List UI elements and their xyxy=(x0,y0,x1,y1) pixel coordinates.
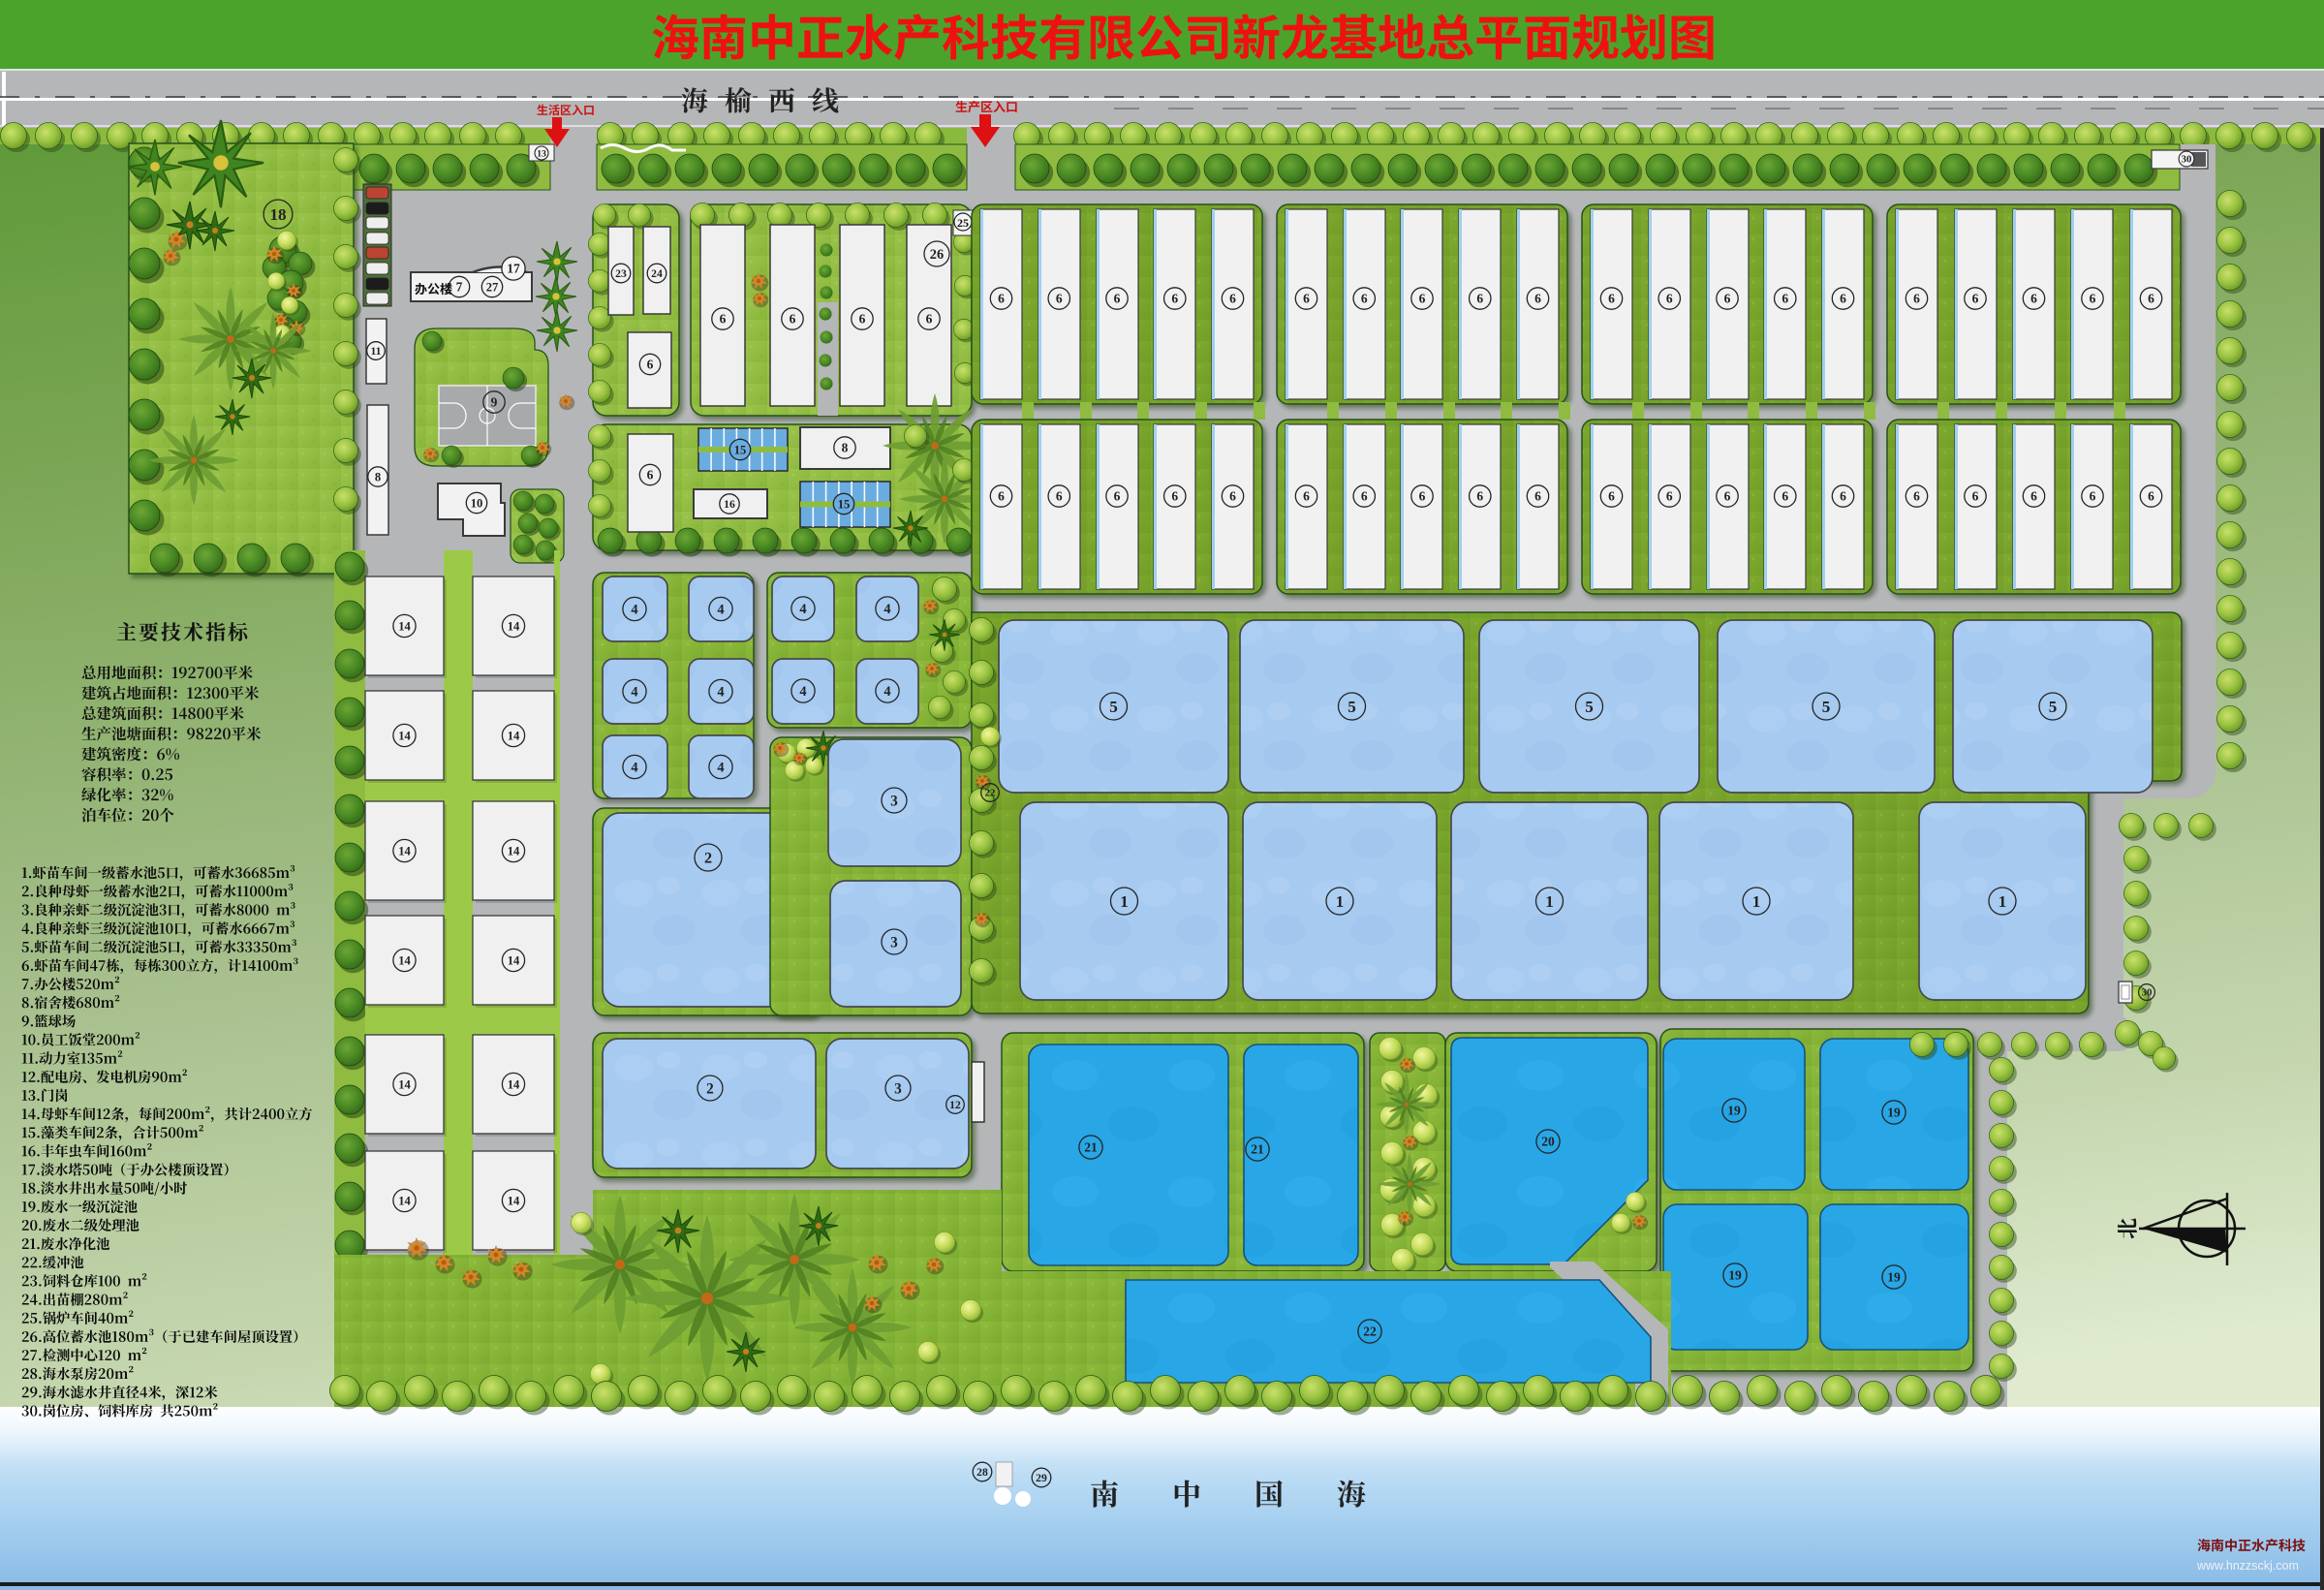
svg-text:19: 19 xyxy=(1727,1104,1741,1118)
svg-text:14: 14 xyxy=(508,953,520,967)
svg-text:22: 22 xyxy=(1363,1325,1377,1339)
svg-text:3: 3 xyxy=(894,1080,902,1097)
svg-text:19: 19 xyxy=(1887,1106,1901,1120)
svg-text:6: 6 xyxy=(720,312,727,327)
svg-text:6: 6 xyxy=(1913,292,1920,306)
svg-text:14: 14 xyxy=(508,619,520,633)
svg-text:23: 23 xyxy=(615,267,627,280)
svg-text:6: 6 xyxy=(1666,292,1673,306)
svg-text:4: 4 xyxy=(631,685,637,701)
svg-text:6: 6 xyxy=(2030,292,2037,306)
svg-text:17: 17 xyxy=(507,262,520,276)
svg-text:4: 4 xyxy=(631,761,637,776)
svg-text:6: 6 xyxy=(1913,489,1920,504)
svg-text:14: 14 xyxy=(398,1077,411,1091)
svg-text:27: 27 xyxy=(486,280,499,294)
svg-text:6: 6 xyxy=(1114,489,1121,504)
svg-text:6: 6 xyxy=(1419,292,1426,306)
svg-text:5: 5 xyxy=(1585,698,1594,716)
svg-text:14: 14 xyxy=(398,953,411,967)
svg-text:6: 6 xyxy=(790,312,796,327)
svg-text:30: 30 xyxy=(2142,987,2153,999)
svg-text:8: 8 xyxy=(842,441,849,455)
svg-text:6: 6 xyxy=(859,312,866,327)
svg-text:6: 6 xyxy=(1724,489,1731,504)
svg-text:4: 4 xyxy=(799,684,806,700)
svg-text:11: 11 xyxy=(370,345,381,358)
svg-text:6: 6 xyxy=(1229,489,1236,504)
svg-text:1: 1 xyxy=(1752,892,1761,911)
svg-text:6: 6 xyxy=(1229,292,1236,306)
svg-text:6: 6 xyxy=(1303,489,1310,504)
svg-text:6: 6 xyxy=(2148,292,2154,306)
svg-text:6: 6 xyxy=(1840,292,1846,306)
svg-text:6: 6 xyxy=(1724,292,1731,306)
svg-text:9: 9 xyxy=(491,395,498,410)
svg-text:25: 25 xyxy=(957,216,969,230)
svg-text:6: 6 xyxy=(1171,292,1178,306)
svg-text:4: 4 xyxy=(717,685,724,701)
svg-text:3: 3 xyxy=(890,793,898,809)
svg-text:6: 6 xyxy=(1114,292,1121,306)
svg-text:14: 14 xyxy=(508,729,520,742)
svg-text:30: 30 xyxy=(2182,154,2192,166)
svg-text:6: 6 xyxy=(1476,292,1483,306)
svg-text:6: 6 xyxy=(2090,292,2096,306)
svg-text:1: 1 xyxy=(1545,892,1554,911)
svg-text:14: 14 xyxy=(398,1194,411,1207)
svg-text:6: 6 xyxy=(2148,489,2154,504)
svg-text:5: 5 xyxy=(2049,698,2058,716)
svg-text:14: 14 xyxy=(508,1194,520,1207)
svg-text:6: 6 xyxy=(1608,489,1615,504)
svg-text:6: 6 xyxy=(1534,292,1541,306)
svg-text:6: 6 xyxy=(1171,489,1178,504)
svg-text:6: 6 xyxy=(647,468,654,483)
svg-text:1: 1 xyxy=(1120,892,1129,911)
svg-text:14: 14 xyxy=(398,844,411,857)
svg-text:7: 7 xyxy=(456,280,463,295)
svg-text:6: 6 xyxy=(998,489,1005,504)
svg-text:6: 6 xyxy=(1056,292,1063,306)
svg-text:2: 2 xyxy=(706,1080,714,1097)
svg-text:4: 4 xyxy=(717,603,724,618)
svg-text:5: 5 xyxy=(1822,698,1831,716)
svg-text:5: 5 xyxy=(1348,698,1356,716)
svg-text:6: 6 xyxy=(998,292,1005,306)
svg-text:6: 6 xyxy=(2030,489,2037,504)
svg-text:6: 6 xyxy=(1303,292,1310,306)
svg-text:6: 6 xyxy=(1056,489,1063,504)
svg-text:21: 21 xyxy=(1084,1140,1098,1155)
svg-text:24: 24 xyxy=(651,267,663,280)
svg-text:6: 6 xyxy=(1608,292,1615,306)
svg-text:3: 3 xyxy=(890,934,898,951)
svg-text:21: 21 xyxy=(1251,1142,1264,1157)
svg-text:29: 29 xyxy=(1036,1472,1047,1484)
svg-text:6: 6 xyxy=(1361,489,1368,504)
svg-text:6: 6 xyxy=(1782,292,1788,306)
svg-text:6: 6 xyxy=(926,312,933,327)
svg-text:18: 18 xyxy=(269,205,286,224)
svg-text:26: 26 xyxy=(930,247,944,263)
svg-text:6: 6 xyxy=(2090,489,2096,504)
svg-text:15: 15 xyxy=(734,443,747,456)
svg-text:28: 28 xyxy=(976,1466,988,1479)
svg-text:14: 14 xyxy=(508,1077,520,1091)
svg-text:1: 1 xyxy=(1999,892,2007,911)
svg-text:16: 16 xyxy=(724,498,735,511)
svg-text:6: 6 xyxy=(1419,489,1426,504)
svg-text:8: 8 xyxy=(375,470,381,483)
svg-text:6: 6 xyxy=(1840,489,1846,504)
svg-text:14: 14 xyxy=(398,729,411,742)
svg-text:6: 6 xyxy=(1782,489,1788,504)
svg-text:4: 4 xyxy=(883,684,890,700)
svg-text:1: 1 xyxy=(1336,892,1345,911)
svg-text:13: 13 xyxy=(537,148,546,159)
svg-text:4: 4 xyxy=(883,602,890,617)
svg-text:14: 14 xyxy=(398,619,411,633)
svg-text:www.hnzzsckj.com: www.hnzzsckj.com xyxy=(2196,1559,2299,1573)
svg-text:10: 10 xyxy=(471,496,483,510)
svg-text:15: 15 xyxy=(838,497,851,511)
svg-text:2: 2 xyxy=(704,850,712,867)
svg-text:6: 6 xyxy=(647,358,654,372)
svg-text:19: 19 xyxy=(1728,1268,1742,1283)
svg-text:6: 6 xyxy=(1666,489,1673,504)
svg-text:6: 6 xyxy=(1361,292,1368,306)
svg-text:4: 4 xyxy=(799,602,806,617)
svg-text:6: 6 xyxy=(1534,489,1541,504)
svg-text:5: 5 xyxy=(1109,698,1118,716)
svg-text:22: 22 xyxy=(985,788,996,799)
svg-text:6: 6 xyxy=(1972,489,1979,504)
svg-text:4: 4 xyxy=(631,603,637,618)
svg-text:20: 20 xyxy=(1541,1135,1555,1149)
svg-text:6: 6 xyxy=(1972,292,1979,306)
svg-text:12: 12 xyxy=(949,1099,961,1111)
svg-text:4: 4 xyxy=(717,761,724,776)
svg-text:14: 14 xyxy=(508,844,520,857)
svg-text:6: 6 xyxy=(1476,489,1483,504)
svg-text:19: 19 xyxy=(1887,1270,1901,1285)
